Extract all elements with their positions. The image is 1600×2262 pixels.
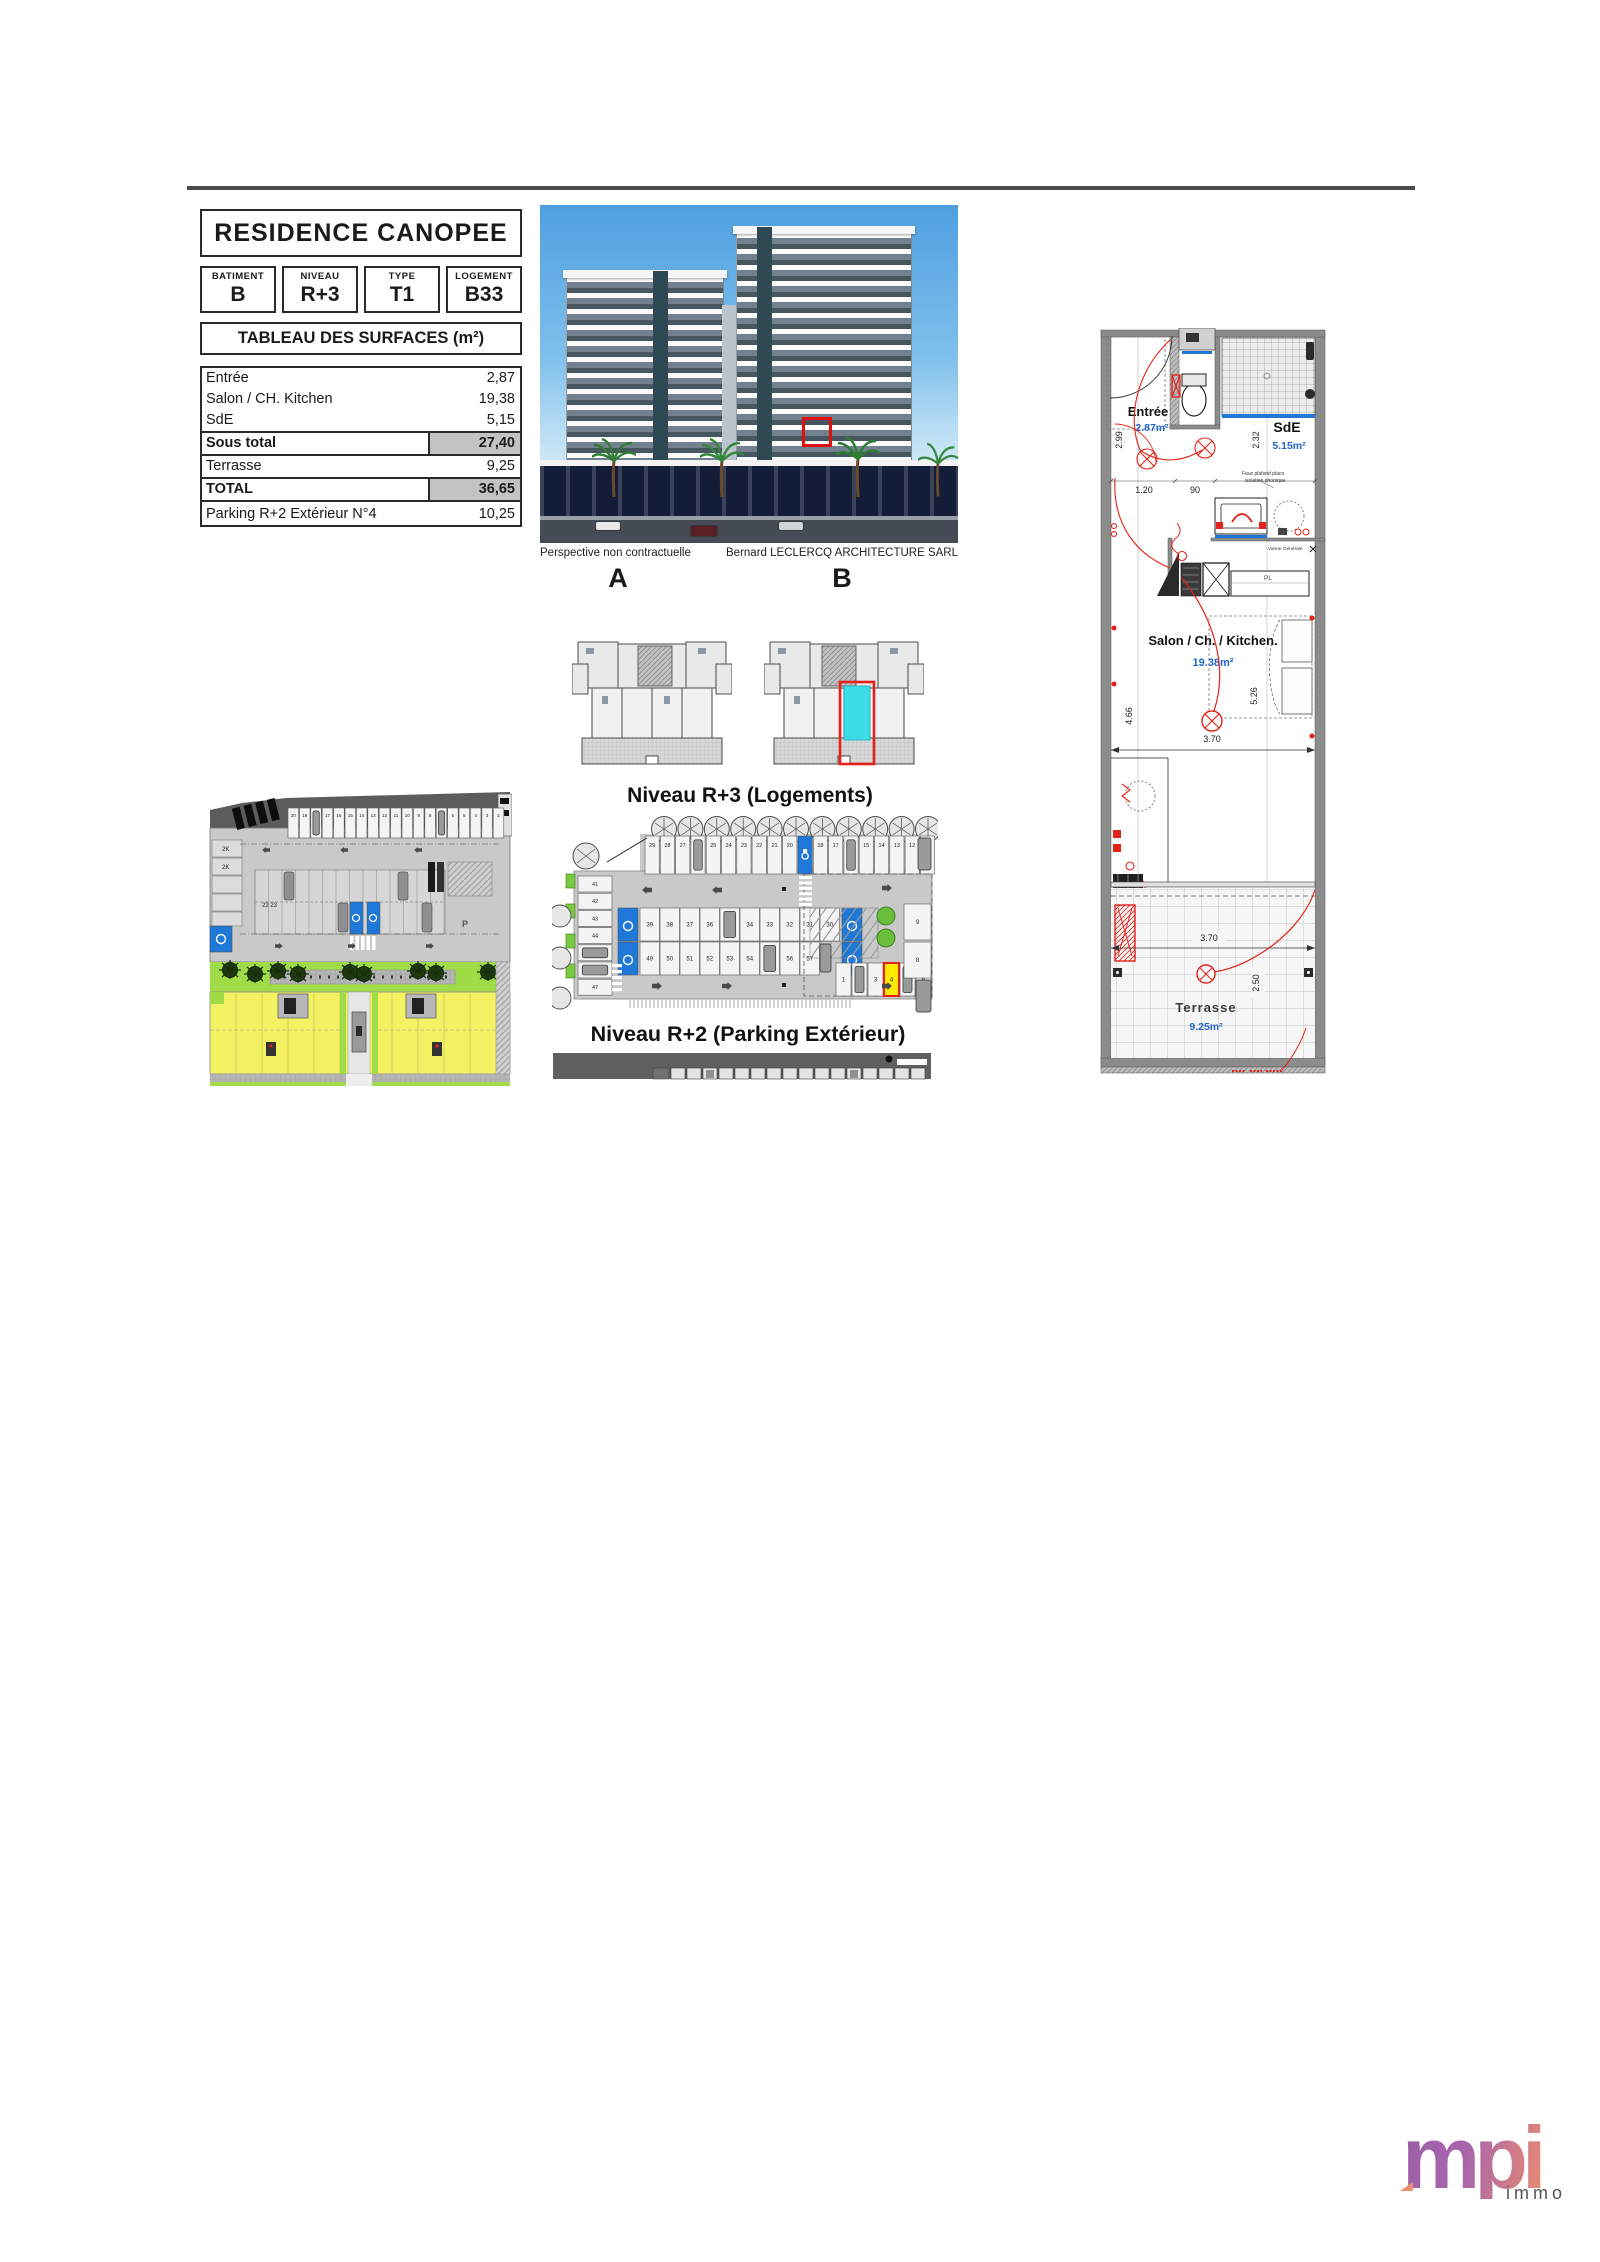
site-left-label-1: 2K xyxy=(222,847,229,853)
dim-wc-w: 90 xyxy=(1190,485,1200,495)
caption-left: Perspective non contractuelle xyxy=(540,547,691,559)
svg-text:17: 17 xyxy=(833,843,839,849)
plan-sheet-page: RESIDENCE CANOPEE BATIMENT B NIVEAU R+3 … xyxy=(0,0,1600,2262)
dim-sde-h: 2.32 xyxy=(1251,431,1261,449)
unit-fields: BATIMENT B NIVEAU R+3 TYPE T1 LOGEMENT B… xyxy=(200,266,522,313)
field-type-value: T1 xyxy=(366,283,438,307)
svg-text:16: 16 xyxy=(336,813,342,818)
floorplan-thumbnail-a xyxy=(572,626,732,778)
building-render xyxy=(540,205,958,543)
svg-text:44: 44 xyxy=(592,934,598,940)
svg-text:20: 20 xyxy=(291,813,297,818)
svg-text:36: 36 xyxy=(706,923,713,929)
svg-text:12: 12 xyxy=(382,813,388,818)
row-value: 36,65 xyxy=(428,479,520,500)
svg-text:24: 24 xyxy=(726,843,732,849)
svg-text:38: 38 xyxy=(666,923,673,929)
svg-text:43: 43 xyxy=(592,916,598,922)
svg-text:50: 50 xyxy=(666,957,673,963)
floorplan-thumbnail-b xyxy=(764,626,924,778)
svg-text:33: 33 xyxy=(766,923,773,929)
car xyxy=(595,521,621,531)
dim-terrasse-h: 2.50 xyxy=(1251,974,1261,992)
r2-left-hedges xyxy=(552,874,575,1009)
svg-text:51: 51 xyxy=(686,957,693,963)
svg-text:21: 21 xyxy=(771,843,777,849)
svg-text:13: 13 xyxy=(371,813,377,818)
site-plan: 201918171615141312111098765432 2K 2K 22 … xyxy=(200,784,512,1086)
svg-text:53: 53 xyxy=(726,957,733,963)
caption-niveau-r3: Niveau R+3 (Logements) xyxy=(540,784,960,808)
row-label: Sous total xyxy=(202,433,428,454)
palm-tree-icon xyxy=(700,437,744,499)
strip-graphics xyxy=(553,1053,931,1079)
site-mid-block: 22 23 xyxy=(255,870,445,934)
svg-text:42: 42 xyxy=(592,899,598,905)
row-value: 10,25 xyxy=(428,502,520,525)
row-value: 19,38 xyxy=(428,389,520,410)
svg-text:15: 15 xyxy=(348,813,354,818)
car xyxy=(690,525,718,537)
field-batiment-label: BATIMENT xyxy=(202,271,274,282)
r3-plan-a xyxy=(572,642,732,764)
site-green-strip xyxy=(210,960,510,992)
caption-niveau-r2: Niveau R+2 (Parking Extérieur) xyxy=(528,1022,968,1047)
caption-right: Bernard LECLERCQ ARCHITECTURE SARL xyxy=(726,547,958,559)
svg-text:14: 14 xyxy=(879,843,885,849)
svg-text:10: 10 xyxy=(405,813,411,818)
svg-text:15: 15 xyxy=(863,843,869,849)
svg-text:56: 56 xyxy=(786,957,793,963)
site-buildings xyxy=(210,992,510,1074)
svg-text:18: 18 xyxy=(817,843,823,849)
dim-salon-h: 4.66 xyxy=(1124,707,1134,725)
apt-terrace: 3.70 2.50 Terrasse 9.25m² xyxy=(1111,882,1315,1071)
car xyxy=(778,521,804,531)
site-stalls-top-row: 201918171615141312111098765432 xyxy=(288,808,504,838)
apt-salon-area: 19.38m² xyxy=(1193,657,1234,669)
cutoff-plan-strip xyxy=(553,1053,931,1083)
dim-salon-w: 3.70 xyxy=(1203,734,1221,744)
row-label: Terrasse xyxy=(202,456,428,477)
svg-text:12: 12 xyxy=(909,843,915,849)
svg-text:54: 54 xyxy=(746,957,753,963)
site-handicap-bottomleft xyxy=(210,926,232,952)
annotation-valve: Vanne Générale xyxy=(1268,546,1303,552)
svg-text:20: 20 xyxy=(787,843,793,849)
site-p-label: P xyxy=(462,919,468,929)
apt-vanity xyxy=(1215,498,1309,538)
dim-entree-h: 2.99 xyxy=(1114,431,1124,449)
svg-text:37: 37 xyxy=(686,923,693,929)
svg-text:17: 17 xyxy=(325,813,331,818)
row-value: 9,25 xyxy=(428,456,520,477)
row-value: 2,87 xyxy=(428,368,520,389)
r2-stalls-mid-row1: 39383736353433323130 xyxy=(640,908,840,941)
apt-sde-label: SdE xyxy=(1273,419,1300,435)
parking-plan-r2: 292827262524232221201817161514131211 414… xyxy=(552,816,938,1022)
r2-stalls-top-row: 292827262524232221201817161514131211 xyxy=(645,836,935,874)
table-row-terrasse: Terrasse 9,25 xyxy=(202,456,520,477)
site-left-label-2: 2K xyxy=(222,865,229,871)
row-label: Entrée xyxy=(202,368,428,389)
palm-tree-icon xyxy=(918,441,958,499)
svg-text:22: 22 xyxy=(756,843,762,849)
surfaces-header: TABLEAU DES SURFACES (m²) xyxy=(200,322,522,355)
apartment-plan: Entrée 2.87m² SdE 5.15m² 2.99 2.32 1.20 … xyxy=(1082,328,1332,1078)
svg-text:32: 32 xyxy=(786,923,793,929)
palm-tree-icon xyxy=(836,435,880,499)
svg-text:47: 47 xyxy=(592,985,598,991)
svg-text:14: 14 xyxy=(359,813,365,818)
table-row-total: TOTAL 36,65 xyxy=(202,477,520,502)
row-value: 5,15 xyxy=(428,410,520,431)
field-batiment-value: B xyxy=(202,283,274,307)
palm-tree-icon xyxy=(592,437,636,499)
residence-title: RESIDENCE CANOPEE xyxy=(200,209,522,257)
svg-text:41: 41 xyxy=(592,882,598,888)
svg-text:23: 23 xyxy=(741,843,747,849)
annotation-ceiling-1: Faux plafond placo xyxy=(1242,471,1284,477)
site-mid-label: 22 23 xyxy=(262,903,278,909)
table-row-salon: Salon / CH. Kitchen 19,38 xyxy=(202,389,520,410)
row-label: TOTAL xyxy=(202,479,428,500)
dim-entree-w: 1.20 xyxy=(1135,485,1153,495)
apt-salon: Salon / Ch. / Kitchen. 19.38m² 4.66 5.26… xyxy=(1111,578,1315,753)
svg-text:28: 28 xyxy=(664,843,670,849)
agency-logo: mpi immo xyxy=(1402,2118,1572,2233)
svg-text:11: 11 xyxy=(394,813,399,818)
building-perspective: Perspective non contractuelle Bernard LE… xyxy=(540,205,958,559)
field-niveau-value: R+3 xyxy=(284,283,356,307)
apt-kitchen: PL xyxy=(1157,552,1309,596)
svg-text:25: 25 xyxy=(710,843,716,849)
building-b-label: B xyxy=(812,563,872,594)
field-niveau: NIVEAU R+3 xyxy=(282,266,358,313)
apt-entree-area: 2.87m² xyxy=(1135,422,1169,434)
row-label: Salon / CH. Kitchen xyxy=(202,389,428,410)
field-logement-value: B33 xyxy=(448,283,520,307)
title-block: RESIDENCE CANOPEE BATIMENT B NIVEAU R+3 … xyxy=(200,209,522,527)
field-logement-label: LOGEMENT xyxy=(448,271,520,282)
r2-bottom-hatch xyxy=(630,1000,850,1008)
svg-text:52: 52 xyxy=(706,957,713,963)
apt-counter-label: PL xyxy=(1264,575,1272,582)
dim-terrasse-w: 3.70 xyxy=(1200,933,1218,943)
apt-terrasse-area: 9.25m² xyxy=(1189,1021,1223,1033)
svg-text:13: 13 xyxy=(894,843,900,849)
svg-text:34: 34 xyxy=(746,923,753,929)
row-label: Parking R+2 Extérieur N°4 xyxy=(202,502,428,525)
row-label: SdE xyxy=(202,410,428,431)
table-row-sde: SdE 5,15 xyxy=(202,410,520,431)
top-rule xyxy=(187,186,1415,190)
dim-salon-h2: 5.26 xyxy=(1249,687,1259,705)
row-value: 27,40 xyxy=(428,433,520,454)
perspective-captions: Perspective non contractuelle Bernard LE… xyxy=(540,547,958,559)
svg-text:27: 27 xyxy=(680,843,686,849)
table-row-parking: Parking R+2 Extérieur N°4 10,25 xyxy=(202,502,520,525)
svg-text:39: 39 xyxy=(646,923,653,929)
apartment-location-marker xyxy=(802,417,832,447)
site-left-col: 2K 2K xyxy=(212,840,242,926)
surfaces-table: Entrée 2,87 Salon / CH. Kitchen 19,38 Sd… xyxy=(200,366,522,527)
apt-sde-area: 5.15m² xyxy=(1272,440,1306,452)
table-row-soustotal: Sous total 27,40 xyxy=(202,431,520,456)
field-type-label: TYPE xyxy=(366,271,438,282)
table-row-entree: Entrée 2,87 xyxy=(202,368,520,389)
r2-stalls-left-col: 41424344454647 xyxy=(578,876,612,995)
field-type: TYPE T1 xyxy=(364,266,440,313)
building-a-label: A xyxy=(588,563,648,594)
annotation-ceiling-2: isolation phonique xyxy=(1245,478,1286,484)
field-niveau-label: NIVEAU xyxy=(284,271,356,282)
r2-stalls-mid-row2: 495051525354555657 xyxy=(640,942,820,975)
field-logement: LOGEMENT B33 xyxy=(446,266,522,313)
apt-terrasse-label: Terrasse xyxy=(1175,1000,1236,1015)
field-batiment: BATIMENT B xyxy=(200,266,276,313)
svg-text:29: 29 xyxy=(649,843,655,849)
svg-text:49: 49 xyxy=(646,957,653,963)
svg-text:19: 19 xyxy=(302,813,308,818)
tower-a xyxy=(566,277,724,463)
